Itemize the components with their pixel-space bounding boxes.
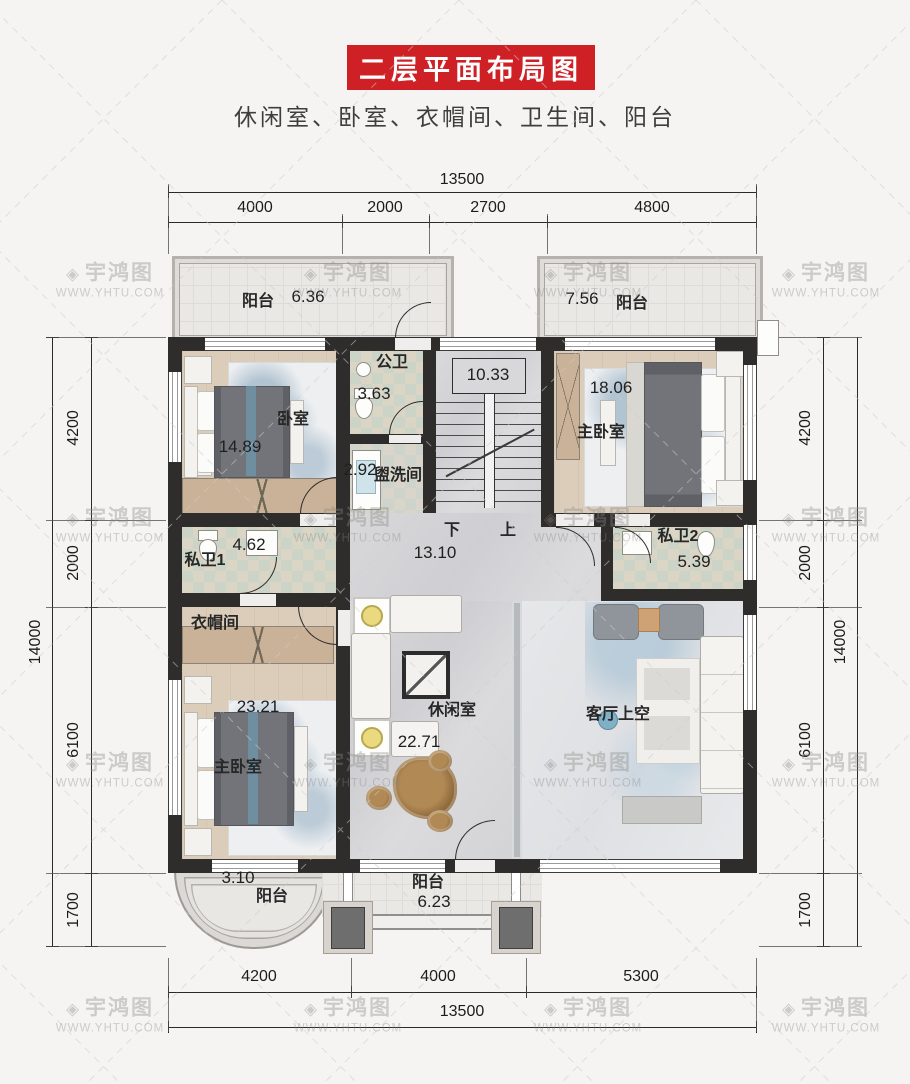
label-living-void: 客厅上空 [586,700,650,724]
label-cloakroom: 衣帽间 [191,609,239,633]
door-gap [300,514,336,526]
area-balcony-bl: 3.10 [221,868,254,888]
nightstand [716,480,744,506]
pillar [331,907,365,949]
area-public-bath: 3.63 [357,384,390,404]
bed-runner [246,386,256,476]
area-private-bath-2: 5.39 [677,552,710,572]
window [565,337,715,351]
window [743,525,757,580]
nightstand [184,828,212,856]
window [743,365,757,480]
area-balcony-bc: 6.23 [417,892,450,912]
area-master-tr: 18.06 [590,378,633,398]
balcony-post-link [343,869,353,905]
label-balcony-bc: 阳台 [412,868,444,892]
pillow [701,374,725,432]
floor-plan: 10.33 下 上 [0,0,910,1084]
sofa [351,633,391,719]
wall [541,337,554,527]
area-balcony-tr: 7.56 [565,289,598,309]
bed-headboard [184,712,198,826]
label-leisure: 休闲室 [428,696,476,720]
bed-blanket [644,362,702,507]
wall [601,589,757,601]
nightstand [716,351,744,377]
window [168,372,182,462]
label-washroom: 盥洗间 [374,461,422,485]
ceiling-lamp [353,719,391,757]
door-gap [455,860,495,872]
door-gap [389,435,421,443]
bath-sink [356,362,371,377]
label-balcony-tr: 阳台 [616,289,648,313]
ceiling-lamp [353,597,391,635]
table-tray [644,716,690,750]
stairs-area: 10.33 [467,365,510,385]
door-gap [240,594,276,606]
stairs-up-label: 上 [500,516,516,540]
root-stool [427,810,453,832]
armchair [593,604,639,640]
door-gap [556,514,594,526]
area-washroom: 2.92 [343,460,376,480]
bed-bench [294,726,308,812]
area-balcony-tl: 6.36 [291,287,324,307]
window [743,615,757,710]
floor-plan-page: 二层平面布局图 休闲室、卧室、衣帽间、卫生间、阳台 13500 4000 200… [0,0,910,1084]
area-private-bath-1: 4.62 [232,535,265,555]
window [540,859,720,873]
wall [601,513,613,601]
area-master-bl: 23.21 [237,697,280,717]
stairs-down-label: 下 [444,516,460,540]
label-balcony-tl: 阳台 [242,287,274,311]
glass-divider [512,601,522,859]
label-private-bath-2: 私卫2 [658,522,699,546]
door-gap [615,514,650,526]
square-table [402,651,450,699]
label-public-bath: 公卫 [376,348,408,372]
root-stool [366,786,392,810]
balcony-post-link [511,869,521,905]
label-balcony-bl: 阳台 [256,882,288,906]
label-master-tr: 主卧室 [577,418,625,442]
tv-bench [622,796,702,824]
label-private-bath-1: 私卫1 [185,546,226,570]
root-stool [428,750,452,772]
window [440,337,536,351]
sofa [390,595,462,633]
ac-unit [757,320,779,356]
window [205,337,325,351]
label-bedroom: 卧室 [277,405,309,429]
table-tray [644,668,690,700]
wardrobe [556,353,580,460]
nightstand [184,356,212,384]
label-master-bl: 主卧室 [214,753,262,777]
armchair [658,604,704,640]
area-bedroom: 14.89 [219,437,262,457]
wall [423,337,436,513]
balcony-railing [371,914,491,930]
bed-headboard [184,386,198,478]
nightstand [184,676,212,704]
door-gap [338,610,350,646]
side-table [638,608,660,632]
area-leisure: 22.71 [398,732,441,752]
window [168,680,182,815]
sofa [700,636,744,794]
area-hall: 13.10 [414,543,457,563]
pillar [499,907,533,949]
